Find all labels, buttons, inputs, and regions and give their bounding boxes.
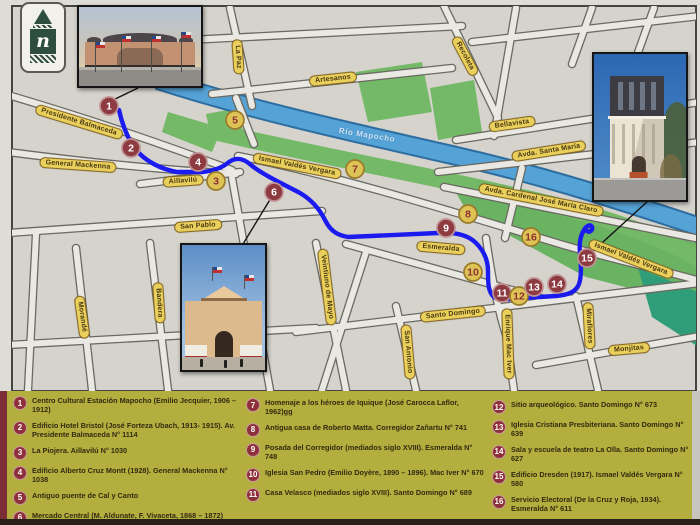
legend-item: 15Edificio Dresden (1917). Ismael Valdés… bbox=[492, 470, 694, 489]
legend-column-2: 7Homenaje a los héroes de Iquique (José … bbox=[246, 398, 484, 502]
map-marker-2: 2 bbox=[122, 139, 140, 157]
map-marker-13: 13 bbox=[525, 278, 543, 296]
svg-text:13: 13 bbox=[528, 282, 540, 294]
legend-item-text: Casa Velasco (mediados siglo XVIII). San… bbox=[265, 488, 472, 497]
photo3-mansard-roof bbox=[610, 76, 664, 116]
map-marker-14: 14 bbox=[548, 275, 566, 293]
logo-spire-base bbox=[33, 25, 53, 28]
map-marker-9: 9 bbox=[437, 219, 455, 237]
svg-text:10: 10 bbox=[467, 267, 479, 279]
photo1-street bbox=[79, 67, 201, 86]
legend-item: 13Iglesia Cristiana Presbiteriana. Santo… bbox=[492, 420, 694, 439]
photo2-arch-entrance bbox=[215, 331, 233, 359]
svg-text:3: 3 bbox=[213, 176, 219, 188]
photo-estacion-mapocho bbox=[77, 5, 203, 88]
photo2-chile-flag bbox=[245, 275, 254, 281]
map-marker-6: 6 bbox=[265, 183, 283, 201]
map-marker-1: 1 bbox=[100, 97, 118, 115]
legend-item: 8Antigua casa de Roberto Matta. Corregid… bbox=[246, 423, 484, 437]
legend-number-badge: 12 bbox=[492, 400, 506, 414]
legend-item-text: Posada del Corregidor (mediados siglo XV… bbox=[265, 443, 484, 462]
svg-text:5: 5 bbox=[232, 115, 238, 127]
map-marker-16: 16 bbox=[522, 228, 540, 246]
svg-text:14: 14 bbox=[551, 279, 563, 291]
legend-item-text: Sala y escuela de teatro La Olla. Santo … bbox=[511, 445, 694, 464]
legend-item-text: Antigua casa de Roberto Matta. Corregido… bbox=[265, 423, 467, 432]
legend-panel: 1Centro Cultural Estación Mapocho (Emili… bbox=[0, 391, 700, 519]
svg-text:6: 6 bbox=[271, 187, 277, 199]
map-marker-7: 7 bbox=[346, 160, 364, 178]
logo-letter-n: n bbox=[30, 29, 56, 54]
photo-edificio-dresden bbox=[592, 52, 688, 202]
photo-mercado-central bbox=[180, 243, 267, 372]
svg-text:7: 7 bbox=[352, 164, 358, 176]
svg-text:9: 9 bbox=[443, 223, 449, 235]
legend-item: 14Sala y escuela de teatro La Olla. Sant… bbox=[492, 445, 694, 464]
map-marker-11: 11 bbox=[493, 284, 511, 302]
legend-number-badge: 16 bbox=[492, 495, 506, 509]
photo1-flagpole bbox=[181, 32, 182, 72]
map-marker-3: 3 bbox=[207, 172, 225, 190]
svg-text:15: 15 bbox=[581, 253, 593, 265]
legend-item-text: Antiguo puente de Cal y Canto bbox=[32, 491, 138, 500]
map-marker-4: 4 bbox=[189, 153, 207, 171]
legend-column-1: 1Centro Cultural Estación Mapocho (Emili… bbox=[13, 396, 239, 525]
photo1-chile-flag bbox=[152, 36, 161, 42]
bottom-dark-edge bbox=[0, 519, 700, 525]
legend-item: 3La Piojera. Aillavilú N° 1030 bbox=[13, 446, 239, 460]
legend-item: 5Antiguo puente de Cal y Canto bbox=[13, 491, 239, 505]
legend-item: 16Servicio Electoral (De la Cruz y Roja,… bbox=[492, 495, 694, 514]
legend-item: 1Centro Cultural Estación Mapocho (Emili… bbox=[13, 396, 239, 415]
legend-column-3: 12Sitio arqueológico. Santo Domingo N° 6… bbox=[492, 400, 694, 514]
legend-number-badge: 13 bbox=[492, 420, 506, 434]
legend-item: 2Edificio Hotel Bristol (José Forteza Ub… bbox=[13, 421, 239, 440]
legend-item-text: Sitio arqueológico. Santo Domingo N° 673 bbox=[511, 400, 657, 409]
svg-text:12: 12 bbox=[513, 291, 525, 303]
legend-item: 11Casa Velasco (mediados siglo XVIII). S… bbox=[246, 488, 484, 502]
legend-number-badge: 11 bbox=[246, 488, 260, 502]
legend-left-maroon-strip bbox=[0, 391, 7, 519]
photo1-chile-flag bbox=[122, 36, 131, 42]
svg-text:11: 11 bbox=[496, 288, 507, 300]
svg-text:2: 2 bbox=[128, 143, 134, 155]
legend-number-badge: 1 bbox=[13, 396, 27, 410]
legend-item-text: Edificio Alberto Cruz Montt (1928). Gene… bbox=[32, 466, 239, 485]
logo-hatch bbox=[30, 55, 56, 63]
legend-number-badge: 7 bbox=[246, 398, 260, 412]
legend-item: 7Homenaje a los héroes de Iquique (José … bbox=[246, 398, 484, 417]
photo2-person bbox=[200, 359, 203, 367]
legend-number-badge: 15 bbox=[492, 470, 506, 484]
legend-number-badge: 8 bbox=[246, 423, 260, 437]
svg-text:16: 16 bbox=[525, 232, 537, 244]
legend-item: 10Iglesia San Pedro (Emilio Doyère, 1890… bbox=[246, 468, 484, 482]
photo3-cornice bbox=[608, 116, 666, 119]
photo2-chile-flag bbox=[213, 267, 222, 273]
legend-item-text: Homenaje a los héroes de Iquique (José C… bbox=[265, 398, 484, 417]
legend-item-text: Edificio Dresden (1917). Ismael Valdés V… bbox=[511, 470, 694, 489]
legend-item: 4Edificio Alberto Cruz Montt (1928). Gen… bbox=[13, 466, 239, 485]
photo2-person bbox=[240, 359, 243, 367]
map-marker-10: 10 bbox=[464, 263, 482, 281]
map-marker-8: 8 bbox=[459, 205, 477, 223]
legend-number-badge: 3 bbox=[13, 446, 27, 460]
leaflet-map-page: 1 2 3 4 5 6 7 8 9 10 11 12 13 14 15 16 bbox=[0, 0, 700, 525]
city-map: 1 2 3 4 5 6 7 8 9 10 11 12 13 14 15 16 bbox=[0, 0, 700, 391]
legend-number-badge: 9 bbox=[246, 443, 260, 457]
legend-number-badge: 5 bbox=[13, 491, 27, 505]
legend-item-text: Iglesia San Pedro (Emilio Doyère, 1890 –… bbox=[265, 468, 484, 477]
map-marker-5: 5 bbox=[226, 111, 244, 129]
map-publisher-logo: n bbox=[20, 2, 66, 73]
legend-item-text: Edificio Hotel Bristol (José Forteza Uba… bbox=[32, 421, 239, 440]
svg-text:1: 1 bbox=[106, 101, 112, 113]
photo2-person bbox=[224, 360, 227, 368]
photo2-cornice bbox=[201, 298, 247, 301]
logo-spire-icon bbox=[34, 9, 52, 24]
legend-item: 9Posada del Corregidor (mediados siglo X… bbox=[246, 443, 484, 462]
legend-number-badge: 2 bbox=[13, 421, 27, 435]
photo3-street bbox=[594, 178, 686, 200]
legend-item-text: La Piojera. Aillavilú N° 1030 bbox=[32, 446, 127, 455]
legend-item-text: Iglesia Cristiana Presbiteriana. Santo D… bbox=[511, 420, 694, 439]
svg-text:4: 4 bbox=[195, 157, 201, 169]
map-marker-15: 15 bbox=[578, 249, 596, 267]
photo1-chile-flag bbox=[96, 42, 105, 48]
legend-number-badge: 4 bbox=[13, 466, 27, 480]
legend-item-text: Servicio Electoral (De la Cruz y Roja, 1… bbox=[511, 495, 694, 514]
legend-item: 12Sitio arqueológico. Santo Domingo N° 6… bbox=[492, 400, 694, 414]
legend-number-badge: 14 bbox=[492, 445, 506, 459]
legend-number-badge: 10 bbox=[246, 468, 260, 482]
svg-text:8: 8 bbox=[465, 209, 471, 221]
photo1-chile-flag bbox=[182, 32, 191, 38]
legend-item-text: Centro Cultural Estación Mapocho (Emilio… bbox=[32, 396, 239, 415]
